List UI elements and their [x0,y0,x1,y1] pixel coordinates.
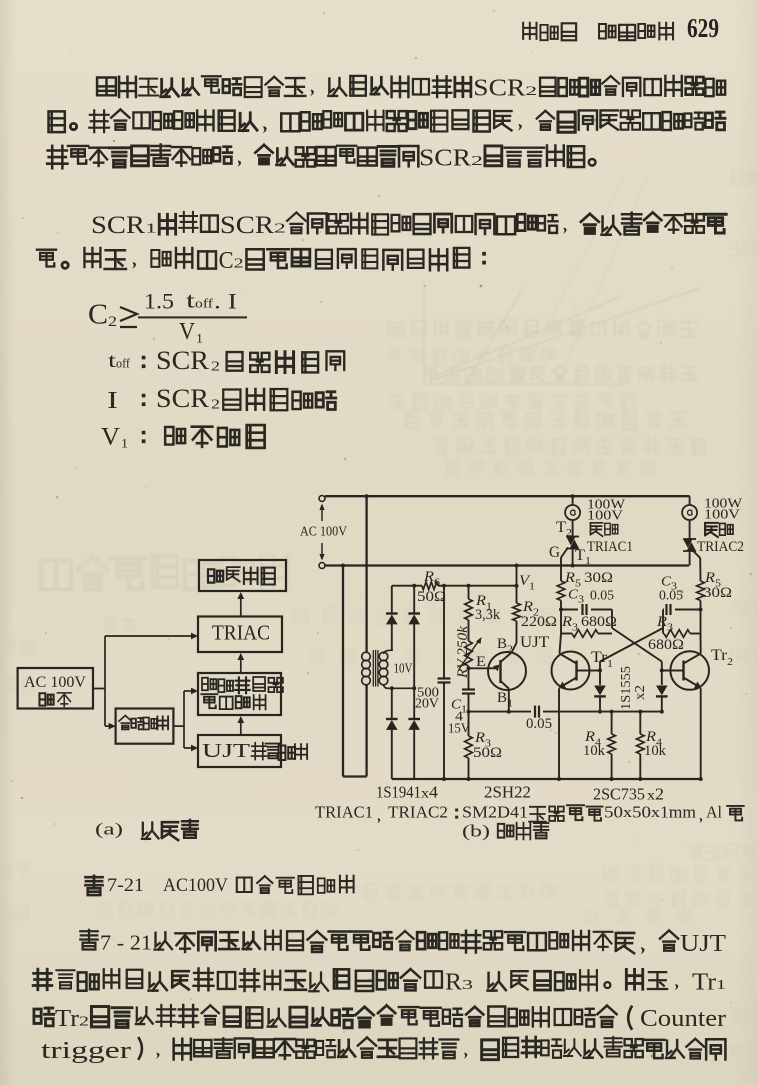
svg-text:B: B [497,690,507,706]
svg-text:100V: 100V [704,507,740,522]
svg-text:50: 50 [417,589,434,605]
svg-text:x2: x2 [633,685,648,700]
svg-text:R: R [564,570,575,586]
svg-text:680: 680 [648,637,672,653]
svg-text:Ω: Ω [601,570,613,586]
svg-text:1mm: 1mm [660,803,696,822]
svg-text:G: G [549,544,560,561]
svg-text:50: 50 [632,803,651,822]
svg-text:10V: 10V [394,661,413,676]
svg-text:1: 1 [121,436,128,451]
svg-text:R: R [474,730,485,746]
svg-text:2: 2 [234,256,244,271]
svg-text:V: V [101,424,120,451]
svg-text:2: 2 [655,785,664,804]
svg-text:680: 680 [581,614,605,630]
svg-text:Ω: Ω [490,745,502,761]
svg-text:SCR: SCR [473,76,525,102]
svg-text:R: R [704,570,715,586]
svg-text:3,3k: 3,3k [475,607,500,623]
svg-text:I: I [107,388,118,414]
svg-text:TRIAC2: TRIAC2 [388,803,448,822]
svg-text:3: 3 [572,622,578,633]
svg-text:UJT: UJT [202,740,250,762]
svg-text:220: 220 [521,614,545,630]
svg-text:UJT: UJT [680,931,726,957]
svg-text:(a): (a) [95,820,123,839]
svg-text:2: 2 [211,397,220,412]
svg-text:10k: 10k [583,743,605,759]
svg-text:E: E [476,654,486,670]
svg-text:TRIAC1: TRIAC1 [315,803,373,822]
svg-text:2SC735: 2SC735 [593,785,645,804]
svg-text:Ω: Ω [672,637,684,653]
svg-text:x: x [421,786,429,801]
svg-text:off: off [195,296,214,311]
svg-text:R: R [561,614,572,630]
svg-text:1S1555: 1S1555 [619,666,634,710]
svg-text:30: 30 [584,570,601,586]
svg-text:2: 2 [211,359,220,374]
svg-text:10k: 10k [644,743,666,759]
svg-text:0.05: 0.05 [526,716,552,732]
svg-text:1S1941: 1S1941 [376,783,421,802]
svg-text:B: B [497,636,507,652]
svg-text:Al: Al [706,803,722,822]
svg-text:SCR: SCR [156,384,210,413]
svg-text:R: R [423,569,434,585]
svg-text:100V: 100V [587,508,623,523]
svg-text:50: 50 [473,745,490,761]
svg-text:2: 2 [566,527,572,539]
svg-text:Tr: Tr [711,647,728,664]
svg-text:7-21: 7-21 [107,875,144,896]
svg-text:T: T [575,547,585,564]
svg-text:R: R [522,599,533,615]
svg-text:R: R [445,969,462,995]
svg-text:2: 2 [274,221,286,236]
svg-text:AC100V: AC100V [163,875,228,896]
svg-text:C: C [88,299,108,331]
svg-text:3: 3 [462,977,474,992]
svg-text:2: 2 [79,1014,89,1029]
svg-text:SCR: SCR [91,212,145,239]
svg-text:6: 6 [434,577,440,588]
svg-text:1: 1 [607,658,613,670]
svg-text:2SH22: 2SH22 [484,783,531,802]
svg-text:50: 50 [604,803,623,822]
svg-text:SCR: SCR [156,346,210,375]
svg-text:0.05: 0.05 [659,588,683,603]
svg-text:SM2D41: SM2D41 [462,803,528,822]
svg-text:3: 3 [578,594,584,605]
svg-text:V: V [179,319,196,345]
svg-text:trigger: trigger [41,1038,131,1064]
svg-text:x: x [647,788,655,803]
svg-text:Tr: Tr [55,1006,79,1032]
svg-text:C: C [219,248,234,274]
svg-text:(b): (b) [462,822,490,841]
svg-text:2: 2 [507,644,513,655]
svg-text:30: 30 [703,585,720,601]
svg-text:Ω: Ω [720,585,732,601]
svg-text:Tr: Tr [591,649,608,666]
svg-text:2: 2 [727,656,733,668]
svg-text:1.5: 1.5 [144,288,174,313]
svg-text:Tr: Tr [692,969,716,995]
svg-text:TRIAC2: TRIAC2 [697,539,744,555]
svg-text:0.05: 0.05 [590,588,614,603]
svg-text:7 - 21: 7 - 21 [100,931,152,955]
svg-text:629: 629 [687,13,719,43]
svg-text:4: 4 [429,783,439,802]
svg-text:SCR: SCR [419,145,471,171]
svg-text:1: 1 [529,581,535,592]
svg-text:1: 1 [716,977,726,992]
svg-text:. I: . I [214,288,237,313]
svg-text:t: t [186,287,195,312]
svg-text:1: 1 [507,698,513,709]
svg-text:Ω: Ω [605,614,617,630]
svg-text:T: T [556,519,566,536]
svg-text:TRIAC: TRIAC [212,621,270,645]
svg-text:2: 2 [525,83,537,98]
svg-text:15V: 15V [448,721,470,736]
svg-text:1: 1 [196,331,203,346]
svg-text:UJT: UJT [520,634,549,651]
svg-text:SCR: SCR [220,212,274,239]
svg-text:2: 2 [471,153,483,168]
svg-text:AC 100V: AC 100V [24,674,86,691]
svg-text:AC 100V: AC 100V [300,524,347,539]
svg-text:Ω: Ω [545,614,557,630]
svg-text:1: 1 [585,555,591,567]
svg-text:1: 1 [145,221,157,236]
svg-text:3: 3 [667,622,673,633]
svg-text:2: 2 [108,314,117,330]
svg-text:R: R [656,614,667,630]
svg-text:Counter: Counter [640,1006,726,1032]
svg-text:off: off [116,356,131,371]
svg-text:20V: 20V [415,696,439,711]
svg-text:TRIAC1: TRIAC1 [587,539,633,555]
